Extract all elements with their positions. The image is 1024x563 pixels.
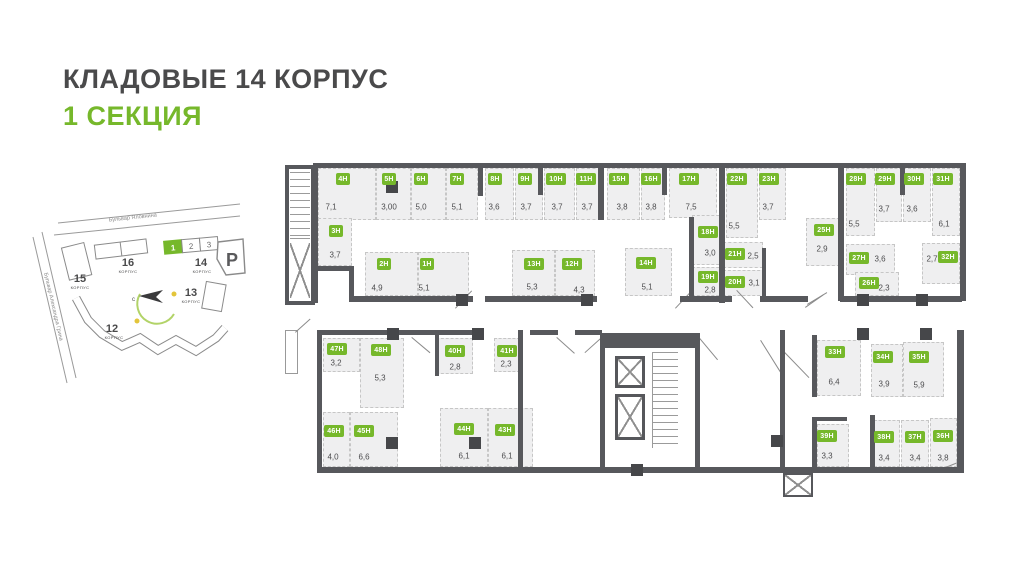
unit-17Н-area-label: 7,5 <box>685 203 696 212</box>
stair-run-cross <box>290 243 310 298</box>
wall-segment <box>575 330 602 335</box>
wall-segment <box>689 217 694 302</box>
column <box>857 294 869 306</box>
unit-8Н-badge[interactable]: 8Н <box>488 173 502 185</box>
unit-37Н-badge[interactable]: 37Н <box>905 431 925 443</box>
wall-segment <box>349 266 354 300</box>
location-minimap: Бульвар Яловнина Бульвар Александра Грин… <box>28 190 263 395</box>
service-stair-cross <box>785 475 811 495</box>
unit-28Н-area-label: 5,5 <box>848 220 859 229</box>
column <box>631 464 643 476</box>
building-14-sections: 1 2 3 <box>164 237 219 255</box>
column <box>916 294 928 306</box>
unit-28Н-badge[interactable]: 28Н <box>846 173 866 185</box>
unit-12Н-area-label: 4,3 <box>573 286 584 295</box>
unit-15Н-area-label: 3,8 <box>616 203 627 212</box>
column <box>771 435 783 447</box>
building-12-corpus-label: КОРПУС <box>105 335 124 340</box>
unit-18Н-area-label: 3,0 <box>704 249 715 258</box>
unit-26Н-area-label: 2,3 <box>878 284 889 293</box>
column <box>386 437 398 449</box>
service-stair-box <box>783 473 813 497</box>
stairs-left <box>285 165 315 305</box>
unit-6Н-area-label: 5,0 <box>415 203 426 212</box>
compass-icon: с <box>132 290 177 324</box>
building-13 <box>202 281 226 311</box>
wall-segment <box>317 330 322 473</box>
unit-14Н-area-label: 5,1 <box>641 283 652 292</box>
unit-23Н-area-label: 3,7 <box>762 203 773 212</box>
unit-9Н-area-label: 3,7 <box>520 203 531 212</box>
unit-38Н-badge[interactable]: 38Н <box>874 431 894 443</box>
wall-segment <box>313 163 318 303</box>
unit-10Н-badge[interactable]: 10Н <box>546 173 566 185</box>
unit-30Н-badge[interactable]: 30Н <box>904 173 924 185</box>
column <box>469 437 481 449</box>
wall-segment <box>760 296 808 302</box>
column <box>920 328 932 340</box>
elevator-shaft-2 <box>615 394 645 440</box>
elevator-cross <box>618 397 642 437</box>
building-15-number: 15 <box>74 273 86 285</box>
unit-33Н-area-label: 6,4 <box>828 378 839 387</box>
door-swing <box>699 338 718 360</box>
unit-43Н-badge[interactable]: 43Н <box>495 424 515 436</box>
unit-46Н-badge[interactable]: 46Н <box>324 425 344 437</box>
unit-18Н-badge[interactable]: 18Н <box>698 226 718 238</box>
wall-segment <box>695 348 700 473</box>
unit-7Н-badge[interactable]: 7Н <box>450 173 464 185</box>
unit-35Н-badge[interactable]: 35Н <box>909 351 929 363</box>
wall-segment <box>313 266 353 271</box>
wall-segment <box>957 330 964 473</box>
street-top-label: Бульвар Яловнина <box>109 212 158 223</box>
unit-36Н-area-label: 3,8 <box>937 454 948 463</box>
unit-25Н-area-label: 2,9 <box>816 245 827 254</box>
unit-31Н-badge[interactable]: 31Н <box>933 173 953 185</box>
wall-segment <box>812 335 817 397</box>
unit-19Н-badge[interactable]: 19Н <box>698 271 718 283</box>
unit-29Н-area-label: 3,7 <box>878 205 889 214</box>
door-swing <box>760 340 782 374</box>
unit-37Н-area-label: 3,4 <box>909 454 920 463</box>
column <box>456 294 468 306</box>
unit-20Н-area-label: 3,1 <box>748 279 759 288</box>
wall-segment <box>538 163 543 195</box>
unit-4Н-badge[interactable]: 4Н <box>336 173 350 185</box>
building-13-number: 13 <box>185 287 197 299</box>
unit-25Н-badge[interactable]: 25Н <box>814 224 834 236</box>
unit-41Н-badge[interactable]: 41Н <box>497 345 517 357</box>
unit-6Н-badge[interactable]: 6Н <box>414 173 428 185</box>
unit-27Н-area-label: 3,6 <box>874 255 885 264</box>
stairs-core <box>652 352 678 448</box>
unit-5Н-badge[interactable]: 5Н <box>382 173 396 185</box>
unit-22Н-area-label: 5,5 <box>728 222 739 231</box>
unit-44Н-badge[interactable]: 44Н <box>454 423 474 435</box>
stair-treads <box>290 172 310 239</box>
unit-34Н-badge[interactable]: 34Н <box>873 351 893 363</box>
unit-35Н-area-label: 5,9 <box>913 381 924 390</box>
unit-45Н-area-label: 6,6 <box>358 453 369 462</box>
wall-segment <box>780 330 785 473</box>
wall-segment <box>812 417 817 468</box>
unit-4Н-area-label: 7,1 <box>325 203 336 212</box>
section-subtitle: 1 СЕКЦИЯ <box>63 101 202 132</box>
unit-48Н-area-label: 5,3 <box>374 374 385 383</box>
unit-32Н-area-label: 2,7 <box>926 255 937 264</box>
unit-16Н-area-label: 3,8 <box>645 203 656 212</box>
unit-3Н-badge[interactable]: 3Н <box>329 225 343 237</box>
door-swing <box>807 292 827 305</box>
wall-segment <box>960 163 966 301</box>
wall-segment <box>349 296 473 302</box>
unit-21Н-badge[interactable]: 21Н <box>725 248 745 260</box>
wall-segment <box>530 330 558 335</box>
unit-17Н-badge[interactable]: 17Н <box>679 173 699 185</box>
unit-13Н-badge[interactable]: 13Н <box>524 258 544 270</box>
unit-7Н-area-label: 5,1 <box>451 203 462 212</box>
column <box>581 294 593 306</box>
unit-36Н-badge[interactable]: 36Н <box>933 430 953 442</box>
wall-segment <box>812 417 847 421</box>
wall-segment <box>662 163 667 195</box>
building-14-number: 14 <box>195 257 208 269</box>
unit-34Н-area-label: 3,9 <box>878 380 889 389</box>
parking-icon: P <box>226 250 238 270</box>
unit-46Н-area-label: 4,0 <box>327 453 338 462</box>
unit-19Н-area-label: 2,8 <box>704 286 715 295</box>
floor-plan: 4Н7,15Н3,006Н5,07Н5,18Н3,69Н3,710Н3,711Н… <box>285 160 967 505</box>
elevator-cross <box>618 359 642 385</box>
unit-10Н-area-label: 3,7 <box>551 203 562 212</box>
unit-47Н-badge[interactable]: 47Н <box>327 343 347 355</box>
door-swing <box>411 337 430 353</box>
unit-27Н-badge[interactable]: 27Н <box>849 252 869 264</box>
wall-segment <box>762 248 766 300</box>
unit-33Н-badge[interactable]: 33Н <box>825 346 845 358</box>
unit-2Н-area-label: 4,9 <box>371 284 382 293</box>
unit-11Н-badge[interactable]: 11Н <box>576 173 596 185</box>
unit-9Н-badge[interactable]: 9Н <box>518 173 532 185</box>
street-top: Бульвар Яловнина <box>54 204 240 235</box>
unit-21Н-area-label: 2,5 <box>747 252 758 261</box>
building-15-corpus-label: КОРПУС <box>71 285 90 290</box>
wall-segment <box>317 330 483 335</box>
wall-segment <box>600 333 700 348</box>
unit-41Н-area-label: 2,3 <box>500 360 511 369</box>
building-13-corpus-label: КОРПУС <box>182 299 201 304</box>
unit-1Н-badge[interactable]: 1Н <box>420 258 434 270</box>
building-16-number: 16 <box>122 257 134 269</box>
building-16-corpus-label: КОРПУС <box>119 269 138 274</box>
page-title: КЛАДОВЫЕ 14 КОРПУС <box>63 64 388 95</box>
column <box>472 328 484 340</box>
unit-38Н-area-label: 3,4 <box>878 454 889 463</box>
column <box>857 328 869 340</box>
unit-15Н-badge[interactable]: 15Н <box>609 173 629 185</box>
unit-32Н-room[interactable] <box>922 243 960 284</box>
unit-48Н-badge[interactable]: 48Н <box>371 344 391 356</box>
unit-5Н-area-label: 3,00 <box>381 203 397 212</box>
wall-segment <box>435 330 439 376</box>
unit-39Н-badge[interactable]: 39Н <box>817 430 837 442</box>
building-12-number: 12 <box>106 323 118 335</box>
unit-1Н-area-label: 5,1 <box>418 284 429 293</box>
unit-40Н-badge[interactable]: 40Н <box>445 345 465 357</box>
entrance-porch <box>285 330 298 374</box>
wall-segment <box>313 163 965 168</box>
wall-segment <box>600 333 605 473</box>
building-14-corpus-label: КОРПУС <box>193 269 212 274</box>
wall-segment <box>518 330 523 472</box>
unit-32Н-badge[interactable]: 32Н <box>938 251 958 263</box>
unit-40Н-area-label: 2,8 <box>449 363 460 372</box>
door-swing <box>295 319 311 333</box>
unit-12Н-badge[interactable]: 12Н <box>562 258 582 270</box>
unit-13Н-area-label: 5,3 <box>526 283 537 292</box>
unit-31Н-area-label: 6,1 <box>938 220 949 229</box>
unit-8Н-area-label: 3,6 <box>488 203 499 212</box>
unit-26Н-badge[interactable]: 26Н <box>859 277 879 289</box>
wall-segment <box>598 163 604 220</box>
unit-44Н-area-label: 6,1 <box>458 452 469 461</box>
unit-2Н-badge[interactable]: 2Н <box>377 258 391 270</box>
unit-16Н-badge[interactable]: 16Н <box>641 173 661 185</box>
unit-45Н-badge[interactable]: 45Н <box>354 425 374 437</box>
door-swing <box>556 337 575 354</box>
unit-3Н-area-label: 3,7 <box>329 251 340 260</box>
column <box>387 328 399 340</box>
unit-43Н-area-label: 6,1 <box>501 452 512 461</box>
unit-20Н-badge[interactable]: 20Н <box>725 276 745 288</box>
elevator-shaft-1 <box>615 356 645 388</box>
unit-30Н-area-label: 3,6 <box>906 205 917 214</box>
compass-north-label: с <box>132 297 135 303</box>
wall-segment <box>478 163 483 196</box>
unit-47Н-area-label: 3,2 <box>330 359 341 368</box>
street-left-label: Бульвар Александра Грина <box>42 272 64 342</box>
unit-39Н-area-label: 3,3 <box>821 452 832 461</box>
unit-29Н-badge[interactable]: 29Н <box>875 173 895 185</box>
unit-11Н-area-label: 3,7 <box>581 203 592 212</box>
wall-segment <box>838 163 844 301</box>
unit-23Н-badge[interactable]: 23Н <box>759 173 779 185</box>
unit-22Н-badge[interactable]: 22Н <box>727 173 747 185</box>
door-swing <box>782 350 809 378</box>
unit-14Н-badge[interactable]: 14Н <box>636 257 656 269</box>
